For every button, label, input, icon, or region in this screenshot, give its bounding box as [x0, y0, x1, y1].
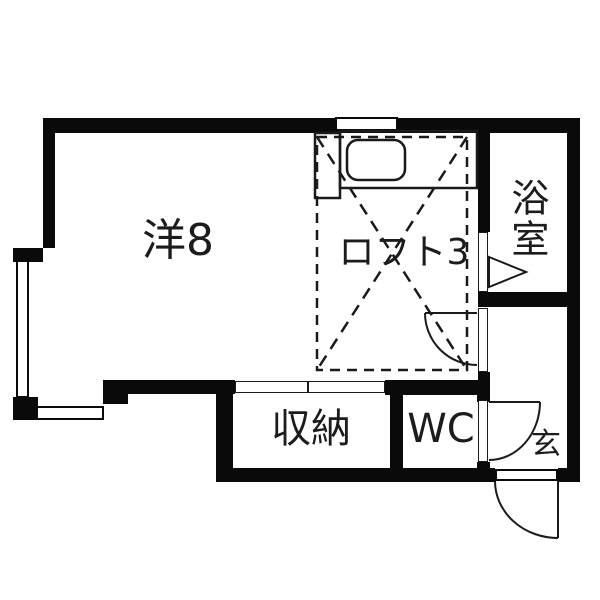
floorplan-canvas: 洋8 ロフト3 浴室 収納 WC 玄 [0, 0, 600, 600]
room-label-entrance: 玄 [529, 429, 563, 461]
room-label-western: 洋8 [130, 218, 226, 264]
room-label-loft: ロフト3 [324, 234, 484, 272]
entrance-door-swing-arc [495, 481, 558, 538]
linework-layer [0, 0, 600, 600]
kitchen-sink [347, 140, 405, 180]
room-label-bathroom: 浴室 [506, 164, 546, 274]
refrigerator-space [315, 133, 340, 198]
room-label-wc: WC [401, 408, 481, 450]
hall-door-swing-arc [425, 313, 477, 365]
room-label-storage: 収納 [231, 408, 391, 450]
